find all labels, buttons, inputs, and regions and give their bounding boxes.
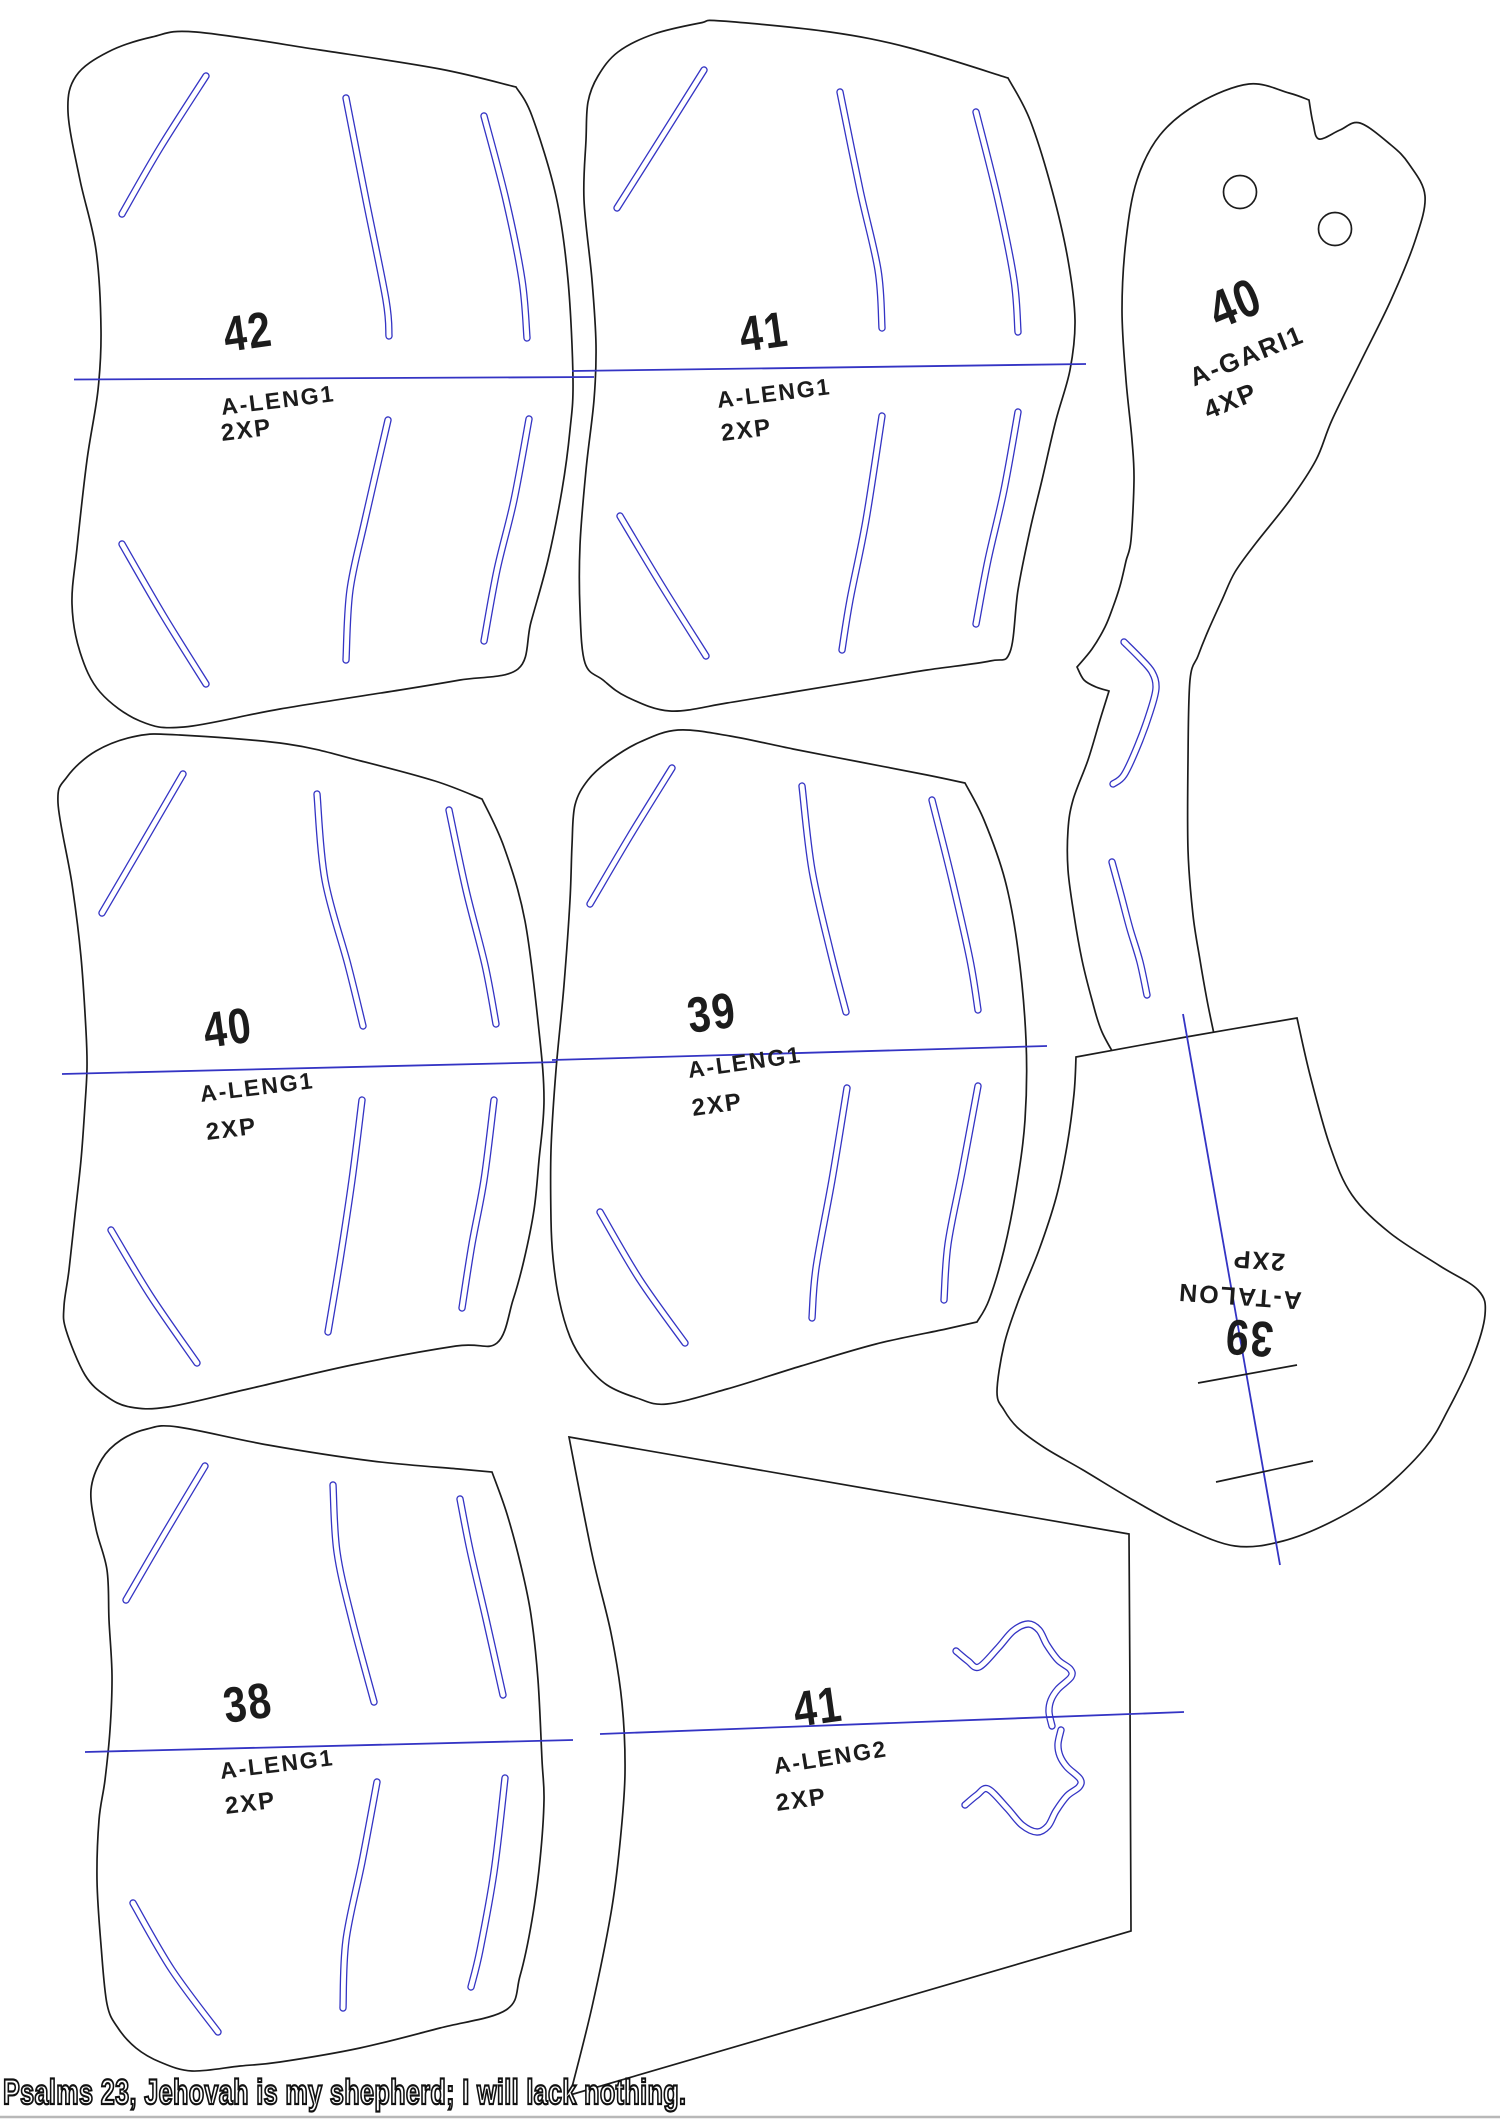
svg-text:40: 40 [200, 997, 256, 1059]
svg-text:39: 39 [1222, 1308, 1275, 1367]
svg-text:2XP: 2XP [1231, 1244, 1286, 1276]
svg-text:39: 39 [684, 982, 740, 1044]
svg-text:41: 41 [736, 301, 792, 363]
svg-text:38: 38 [220, 1672, 276, 1734]
svg-text:42: 42 [220, 301, 276, 363]
svg-text:Psalms 23, Jehovah is my sheph: Psalms 23, Jehovah is my shepherd; I wil… [3, 2073, 686, 2112]
svg-text:41: 41 [790, 1676, 846, 1738]
